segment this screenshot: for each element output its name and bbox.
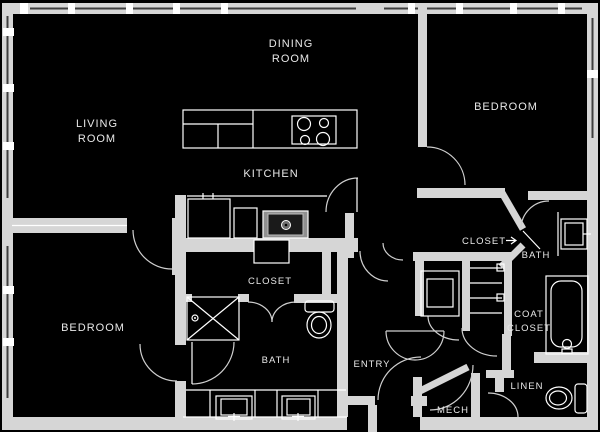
- room-label-mech: MECH: [437, 405, 469, 416]
- door-arc-closet-french-left: [248, 302, 272, 322]
- door-arc-closet-french-right: [272, 302, 296, 322]
- bath2-angled-wall: [501, 191, 523, 229]
- room-label-living-line1: LIVING: [76, 118, 118, 130]
- window-mullion: [221, 3, 228, 14]
- window-mullion: [510, 3, 517, 14]
- floor-plan: DINING ROOM LIVING ROOM BEDROOM KITCHEN …: [0, 0, 600, 432]
- floor-plan-canvas: DINING ROOM LIVING ROOM BEDROOM KITCHEN …: [0, 0, 600, 432]
- door-arc-bedroom-left: [133, 230, 172, 269]
- door-arc-linen: [488, 393, 518, 417]
- cooktop-icon: [292, 116, 336, 146]
- fridge-icon: [188, 193, 230, 238]
- window-mullion: [558, 3, 565, 14]
- washer-dryer-icon: [421, 271, 459, 316]
- window-mullion: [587, 70, 598, 78]
- toilet-icon: [305, 301, 334, 338]
- door-arc-entry-hall: [386, 331, 444, 360]
- toilet-icon: [546, 384, 587, 413]
- entry-alcove-wall: [347, 396, 375, 405]
- window-mullion: [173, 3, 180, 14]
- room-label-bath-second: BATH: [522, 250, 551, 261]
- mech-angled-wall: [420, 367, 468, 391]
- room-label-dining-line2: ROOM: [272, 53, 310, 65]
- interior-walls: [12, 3, 590, 417]
- room-label-coat-line1: COAT: [514, 309, 544, 320]
- kitchen-sink-icon: [263, 211, 308, 238]
- closet-niche: [254, 240, 289, 263]
- room-label-closet-main: CLOSET: [248, 276, 292, 287]
- window-mullion: [3, 84, 14, 92]
- bathtub-icon: [546, 276, 588, 354]
- window-mullion: [3, 28, 14, 36]
- window-mullion: [20, 3, 28, 14]
- room-label-bath-main: BATH: [262, 355, 291, 366]
- closet-second-arrow-icon: [506, 237, 516, 244]
- door-arc-shower: [192, 342, 234, 384]
- room-label-living-line2: ROOM: [78, 133, 116, 145]
- room-label-bedroom-left: BEDROOM: [61, 322, 125, 334]
- dishwasher-icon: [234, 208, 257, 238]
- shower-icon: [187, 297, 239, 340]
- door-arc-hall: [360, 251, 388, 281]
- room-label-coat-line2: CLOSET: [507, 323, 551, 334]
- door-arc-bedroom-top: [427, 147, 465, 185]
- room-label-dining-line1: DINING: [269, 38, 314, 50]
- coat-closet-shelves: [470, 264, 504, 313]
- window-mullion: [3, 286, 14, 294]
- door-arc-bath-second: [521, 201, 549, 229]
- window-mullion: [3, 338, 14, 346]
- window-mullion: [408, 3, 415, 14]
- room-label-linen: LINEN: [511, 381, 544, 392]
- window-mullion: [68, 3, 75, 14]
- window-mullion: [456, 3, 463, 14]
- room-label-entry: ENTRY: [353, 359, 390, 370]
- window-mullion: [126, 3, 133, 14]
- room-label-kitchen: KITCHEN: [243, 168, 298, 180]
- window-mullion: [3, 142, 14, 150]
- entry-alcove-wall: [368, 405, 377, 432]
- room-label-closet-second: CLOSET: [462, 236, 506, 247]
- door-arc-kitchen: [326, 178, 358, 212]
- door-arc-hall-closet: [383, 243, 403, 260]
- door-arc-bath-main: [140, 344, 177, 381]
- room-label-bedroom-top: BEDROOM: [474, 101, 538, 113]
- double-vanity: [186, 390, 346, 421]
- vanity-sink-icon: [558, 212, 591, 256]
- bath-second-door-leaf: [523, 231, 540, 249]
- door-arc-wc: [462, 328, 497, 356]
